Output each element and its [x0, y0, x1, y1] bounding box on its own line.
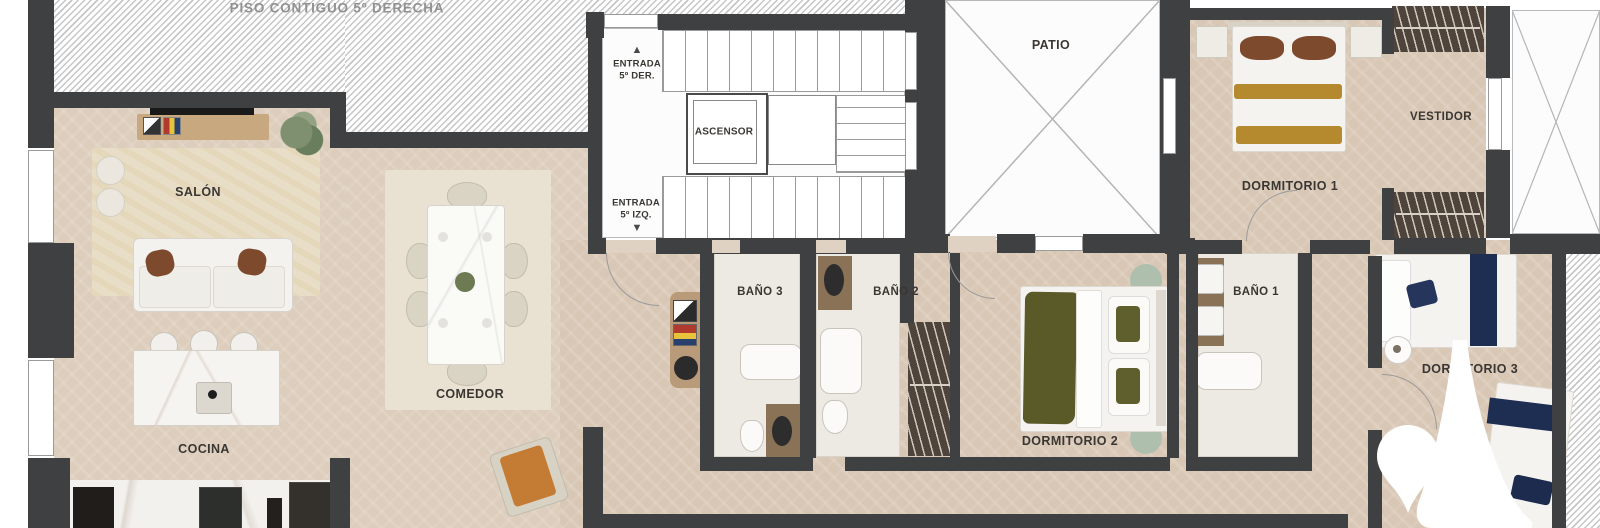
window — [28, 360, 54, 456]
wall — [50, 92, 346, 108]
dorm1-gold-runner — [1234, 84, 1342, 99]
dormitorio2-door — [948, 236, 996, 252]
art-frame — [163, 117, 181, 135]
dorm2-duvet-fold — [1076, 290, 1102, 428]
art-frame — [673, 300, 697, 322]
vestidor-wardrobe-bottom — [1392, 192, 1484, 238]
bano2-toilet — [822, 400, 848, 434]
wall — [1186, 253, 1198, 458]
fridge-appliance — [289, 482, 332, 528]
stairs-landing-steps — [836, 95, 907, 173]
cocina-label: COCINA — [178, 442, 230, 456]
place-setting — [438, 232, 448, 242]
floor-plan: PISO CONTIGUO 5º DERECHA SALÓN COCINA CO… — [0, 0, 1600, 528]
dorm1-pillow — [1292, 36, 1336, 60]
dorm1-gold-blanket — [1236, 126, 1342, 144]
oven-appliance — [73, 487, 114, 528]
wall — [1486, 150, 1510, 238]
plant — [278, 110, 324, 160]
wall — [583, 427, 603, 528]
window — [905, 32, 917, 90]
wall — [588, 238, 606, 254]
entrada-izq-label-1: ENTRADA — [612, 198, 660, 209]
adjacent-unit-hatch-mid — [345, 0, 600, 132]
apartment-entry-door — [606, 240, 656, 253]
wall — [28, 0, 54, 148]
entrada-der-label-1: ENTRADA — [613, 59, 661, 70]
wall — [1394, 238, 1486, 254]
entry-door-top — [604, 14, 658, 28]
dorm2-headboard — [1156, 290, 1166, 426]
round-mirror — [674, 356, 698, 380]
wall — [333, 132, 589, 148]
dining-chair — [502, 291, 528, 327]
dorm2-olive-blanket — [1023, 292, 1077, 425]
down-arrow-icon: ▼ — [632, 222, 643, 234]
bano1-bathtub — [1196, 352, 1262, 390]
salon-label: SALÓN — [175, 185, 221, 199]
wall — [28, 243, 74, 358]
wall — [1486, 6, 1510, 78]
entrada-izq-label-2: 5º IZQ. — [620, 210, 651, 221]
bano2-sink — [824, 264, 844, 296]
entrada-der-label-2: 5º DER. — [619, 71, 655, 82]
dorm2-pillow-accent — [1116, 306, 1140, 342]
place-setting — [438, 318, 448, 328]
island-faucet — [208, 390, 217, 399]
stairs-upper-flight — [662, 30, 907, 92]
dorm1-nightstand — [1196, 26, 1228, 58]
vestidor-wardrobe-top — [1392, 6, 1484, 52]
ascensor-label: ASCENSOR — [695, 127, 753, 138]
window — [28, 150, 54, 243]
adjacent-unit-label: PISO CONTIGUO 5º DERECHA — [230, 1, 445, 16]
wall — [1382, 188, 1394, 240]
pouf — [96, 156, 125, 185]
bano3-bathtub — [740, 344, 802, 380]
bano2-door — [816, 240, 846, 253]
art-frame — [143, 117, 161, 135]
wall — [1310, 240, 1370, 254]
wall — [950, 253, 960, 458]
window — [1163, 78, 1176, 154]
bano3-sink — [772, 416, 792, 446]
wall — [1298, 253, 1312, 458]
window — [905, 102, 917, 170]
dishwasher-appliance — [199, 487, 242, 528]
bano2-label: BAÑO 2 — [873, 286, 919, 298]
dormitorio2-closet — [908, 322, 952, 456]
wall — [951, 457, 1170, 471]
up-arrow-icon: ▲ — [632, 44, 643, 56]
vestidor-label: VESTIDOR — [1410, 111, 1472, 123]
place-setting — [482, 232, 492, 242]
dorm1-pillow — [1240, 36, 1284, 60]
bano3-toilet — [740, 420, 764, 452]
window — [1035, 236, 1083, 251]
wall — [330, 458, 350, 528]
patio-cross-lines — [945, 0, 1160, 238]
window — [1488, 78, 1502, 150]
logo-letter-a — [1417, 340, 1532, 528]
lightwell-cross-lines — [1512, 10, 1600, 234]
wall — [800, 253, 816, 458]
stair-shaft-box — [768, 95, 836, 165]
wall — [1167, 253, 1179, 458]
place-setting — [482, 318, 492, 328]
wall — [1188, 8, 1394, 20]
bano2-bathtub — [820, 328, 862, 394]
art-frame — [673, 324, 697, 346]
patio-label: PATIO — [1032, 38, 1070, 52]
wall — [658, 14, 930, 30]
wall — [700, 253, 714, 458]
dormitorio1-label: DORMITORIO 1 — [1242, 179, 1338, 193]
wall — [1186, 457, 1312, 471]
wall — [600, 514, 1348, 528]
bano1-sink — [1196, 306, 1224, 336]
wall — [845, 457, 951, 471]
brand-logo-watermark — [1330, 320, 1600, 528]
dining-chair — [502, 243, 528, 279]
table-centerpiece — [455, 272, 475, 292]
small-appliance — [267, 498, 282, 528]
wall — [656, 238, 908, 254]
wall — [1382, 8, 1394, 54]
wall — [997, 234, 1035, 253]
stairs-lower-flight — [662, 176, 907, 240]
bano3-door — [712, 240, 740, 253]
wall — [1083, 234, 1167, 253]
comedor-label: COMEDOR — [436, 387, 504, 401]
tv-screen — [150, 108, 254, 115]
wall — [28, 458, 70, 528]
dorm2-pillow-accent — [1116, 368, 1140, 404]
wall — [700, 457, 813, 471]
dorm1-nightstand — [1350, 26, 1382, 58]
wall — [905, 234, 950, 253]
bano1-label: BAÑO 1 — [1233, 286, 1279, 298]
wall — [1190, 240, 1242, 254]
bano1-sink — [1196, 264, 1224, 294]
wall — [588, 28, 602, 242]
dormitorio2-label: DORMITORIO 2 — [1022, 434, 1118, 448]
pouf — [96, 188, 125, 217]
bano3-label: BAÑO 3 — [737, 286, 783, 298]
